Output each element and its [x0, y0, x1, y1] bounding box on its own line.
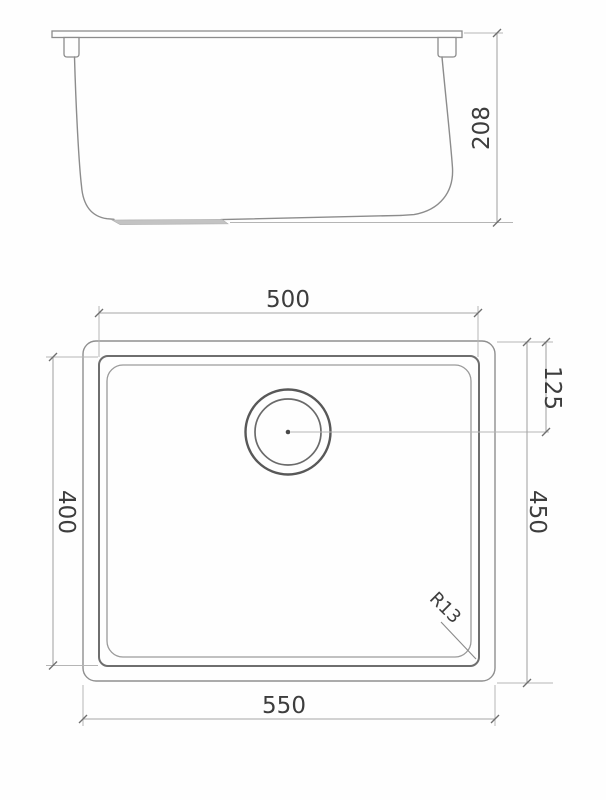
dimension-height-208: 208 [230, 29, 513, 227]
rim-profile [52, 31, 462, 38]
dimension-drain-offset-125: 125 [539, 338, 565, 436]
sink-technical-drawing: 208 500 [0, 0, 606, 800]
dimension-label-550: 550 [262, 693, 306, 719]
left-wall-line [75, 57, 115, 219]
dimension-label-125: 125 [539, 366, 565, 410]
dimension-label-400: 400 [53, 490, 79, 534]
dimension-label-208: 208 [469, 106, 495, 150]
bottom-line [221, 215, 401, 219]
right-clip [438, 38, 456, 58]
left-clip [64, 38, 79, 58]
drain-center-point [286, 430, 291, 435]
dimension-label-450: 450 [524, 490, 550, 534]
side-elevation-view: 208 [52, 29, 513, 227]
dimension-overall-width-550: 550 [79, 685, 499, 726]
right-wall-line [401, 57, 453, 215]
bowl-edge-rect [99, 356, 479, 666]
sink-technical-drawing-page: 208 500 [0, 0, 606, 800]
dimension-label-500: 500 [266, 287, 310, 313]
plan-view: 500 550 400 450 [46, 287, 565, 726]
drain-pad [112, 219, 228, 224]
